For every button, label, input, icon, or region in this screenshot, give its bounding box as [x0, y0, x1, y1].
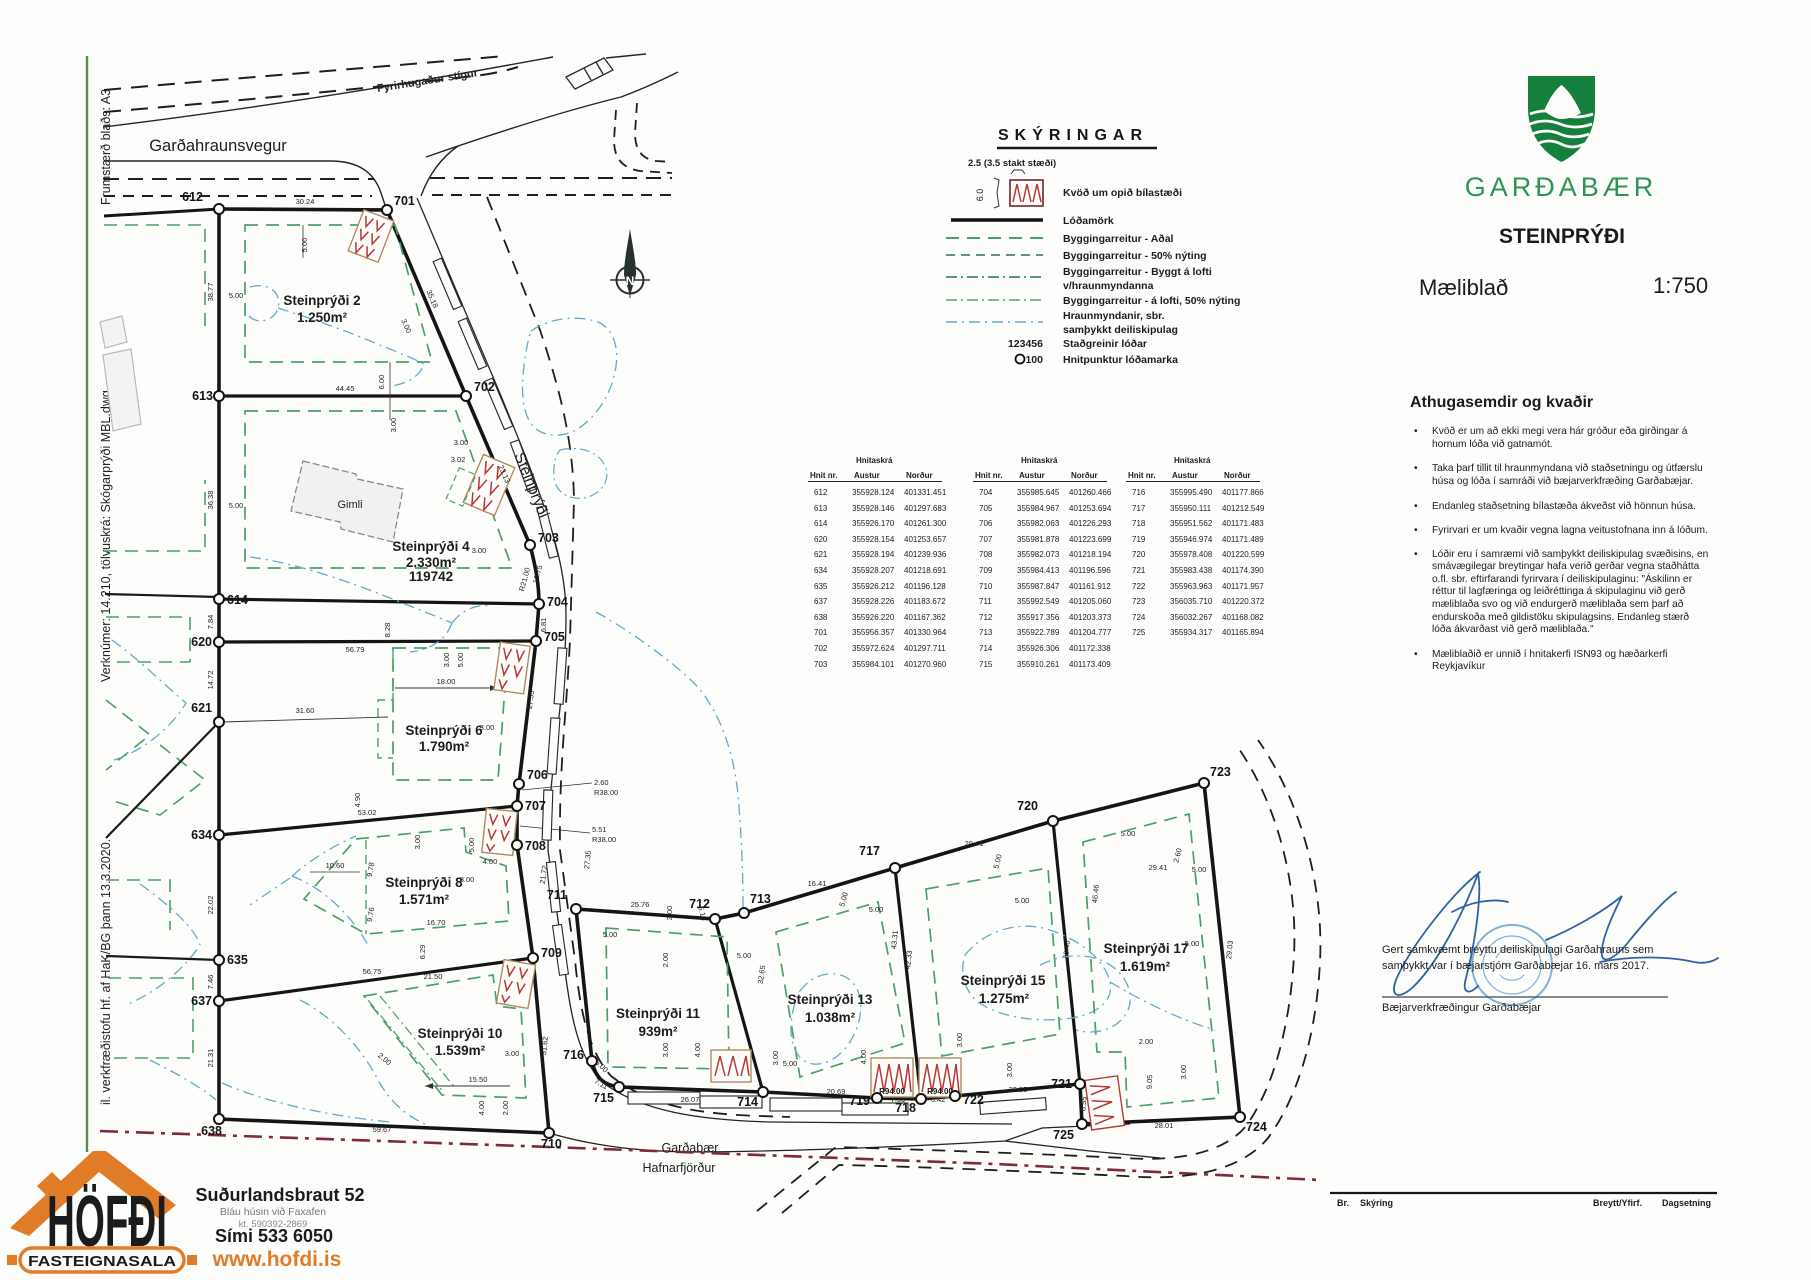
svg-text:21.31: 21.31 [206, 1049, 215, 1068]
svg-text:Suðurlandsbraut 52: Suðurlandsbraut 52 [195, 1185, 364, 1205]
svg-text:8.28: 8.28 [383, 623, 392, 638]
svg-text:15.50: 15.50 [469, 1075, 488, 1084]
svg-text:3.00: 3.00 [454, 438, 469, 447]
svg-text:FASTΕIGNASALA: FASTΕIGNASALA [28, 1253, 176, 1270]
svg-text:56.79: 56.79 [346, 645, 365, 654]
svg-text:22.02: 22.02 [206, 896, 215, 915]
svg-text:Mæliblað: Mæliblað [1419, 275, 1508, 300]
svg-text:5.00: 5.00 [1185, 939, 1200, 948]
svg-text:Frumstærð blaðs: A3: Frumstærð blaðs: A3 [99, 89, 113, 205]
svg-text:707: 707 [525, 799, 546, 813]
svg-text:620: 620 [191, 635, 212, 649]
svg-text:709: 709 [541, 946, 562, 960]
svg-text:3.00: 3.00 [661, 1043, 670, 1058]
svg-text:712: 712 [689, 897, 710, 911]
svg-text:59.67: 59.67 [373, 1125, 392, 1134]
svg-text:Skýring: Skýring [1360, 1198, 1393, 1208]
svg-text:3.00: 3.00 [1005, 1063, 1014, 1078]
svg-text:Steinprýði 8: Steinprýði 8 [385, 875, 463, 890]
svg-text:Steinprýði 15: Steinprýði 15 [961, 973, 1046, 988]
svg-text:5.00: 5.00 [229, 291, 244, 300]
svg-text:v/hraunmyndanna: v/hraunmyndanna [1063, 280, 1154, 292]
svg-text:Byggingarreitur - á lofti, 50%: Byggingarreitur - á lofti, 50% nýting [1063, 295, 1240, 307]
svg-text:14.72: 14.72 [206, 671, 215, 690]
svg-text:701: 701 [394, 194, 415, 208]
svg-text:Dagsetning: Dagsetning [1662, 1198, 1711, 1208]
svg-text:Hraunmyndanir, sbr.: Hraunmyndanir, sbr. [1063, 310, 1165, 322]
svg-text:il. verkfræðistofu hf. af HaK/: il. verkfræðistofu hf. af HaK/BG þann 13… [99, 839, 113, 1105]
svg-text:3.00: 3.00 [389, 418, 398, 433]
svg-text:5.00: 5.00 [869, 905, 884, 914]
svg-text:3.00: 3.00 [472, 546, 487, 555]
svg-text:1.038m²: 1.038m² [805, 1010, 856, 1025]
svg-text:2.60: 2.60 [594, 778, 609, 787]
svg-text:Breytt/Yfirf.: Breytt/Yfirf. [1593, 1198, 1642, 1208]
svg-text:R94.00: R94.00 [879, 1087, 905, 1096]
svg-text:5.00: 5.00 [467, 838, 476, 853]
svg-text:5.00: 5.00 [1121, 829, 1136, 838]
svg-text:Lóðamörk: Lóðamörk [1063, 215, 1114, 227]
svg-text:719: 719 [849, 1094, 870, 1108]
svg-text:5.00: 5.00 [737, 951, 752, 960]
svg-text:Steinprýði 10: Steinprýði 10 [418, 1026, 503, 1041]
svg-text:1.571m²: 1.571m² [399, 892, 450, 907]
svg-text:5.00: 5.00 [1192, 865, 1207, 874]
svg-text:HÖFÐI: HÖFÐI [47, 1182, 167, 1262]
svg-text:708: 708 [525, 839, 546, 853]
svg-text:GARÐABÆR: GARÐABÆR [1465, 172, 1658, 202]
svg-text:4.00: 4.00 [859, 1050, 868, 1065]
svg-text:Steinprýði 11: Steinprýði 11 [616, 1006, 701, 1021]
svg-text:710: 710 [541, 1137, 562, 1151]
svg-text:30.24: 30.24 [296, 197, 315, 206]
svg-text:713: 713 [750, 892, 771, 906]
svg-text:119742: 119742 [409, 569, 453, 584]
svg-text:5.00: 5.00 [456, 653, 465, 668]
svg-text:721: 721 [1051, 1077, 1072, 1091]
svg-text:2.00: 2.00 [661, 953, 670, 968]
svg-text:3.00: 3.00 [1179, 1065, 1188, 1080]
svg-text:5.51: 5.51 [592, 825, 607, 834]
svg-text:28.01: 28.01 [1155, 1121, 1174, 1130]
svg-text:Bæjarverkfræðingur Garðabæjar: Bæjarverkfræðingur Garðabæjar [1382, 1002, 1541, 1014]
svg-text:R38.00: R38.00 [594, 788, 618, 797]
svg-text:Steinprýði 17: Steinprýði 17 [1104, 941, 1189, 956]
svg-text:5.00: 5.00 [300, 238, 309, 253]
svg-text:4.90: 4.90 [353, 793, 362, 808]
svg-text:5.00: 5.00 [783, 1059, 798, 1068]
svg-text:720: 720 [1017, 799, 1038, 813]
svg-text:724: 724 [1246, 1120, 1267, 1134]
svg-text:5.00: 5.00 [1015, 896, 1030, 905]
svg-text:44.45: 44.45 [336, 384, 355, 393]
svg-text:samþykkt var í bæjarstjórn Gar: samþykkt var í bæjarstjórn Garðabæjar 16… [1382, 960, 1649, 972]
svg-text:614: 614 [227, 593, 248, 607]
svg-text:613: 613 [192, 389, 213, 403]
svg-text:3.00: 3.00 [505, 1049, 520, 1058]
svg-text:612: 612 [182, 190, 203, 204]
svg-text:Verknúmer: 14.210, tölvuskrá:: Verknúmer: 14.210, tölvuskrá: Skógarprýð… [99, 390, 113, 682]
svg-text:26.07: 26.07 [681, 1095, 700, 1104]
svg-text:Byggingarreitur - Aðal: Byggingarreitur - Aðal [1063, 233, 1174, 245]
svg-text:36.38: 36.38 [206, 491, 215, 510]
svg-text:25.76: 25.76 [631, 900, 650, 909]
svg-text:717: 717 [859, 844, 880, 858]
svg-text:4.00: 4.00 [483, 857, 498, 866]
svg-text:2.00: 2.00 [501, 1101, 510, 1116]
svg-text:7.46: 7.46 [206, 975, 215, 990]
svg-text:3.00: 3.00 [413, 835, 422, 850]
svg-text:1.619m²: 1.619m² [1120, 959, 1171, 974]
svg-text:1.539m²: 1.539m² [435, 1043, 486, 1058]
svg-text:3.00: 3.00 [771, 1051, 780, 1066]
svg-text:704: 704 [547, 595, 568, 609]
svg-text:715: 715 [593, 1091, 614, 1105]
svg-text:703: 703 [538, 531, 559, 545]
svg-text:6.29: 6.29 [418, 945, 427, 960]
svg-text:56.75: 56.75 [363, 967, 382, 976]
svg-text:Byggingarreitur - Byggt á loft: Byggingarreitur - Byggt á lofti [1063, 266, 1212, 278]
svg-text:705: 705 [544, 630, 565, 644]
svg-text:29.41: 29.41 [1149, 863, 1168, 872]
svg-text:5.00: 5.00 [229, 501, 244, 510]
svg-text:18.00: 18.00 [437, 677, 456, 686]
svg-text:16.70: 16.70 [427, 918, 446, 927]
svg-text:123456: 123456 [1008, 338, 1043, 350]
svg-text:718: 718 [895, 1101, 916, 1115]
svg-text:100: 100 [1025, 354, 1043, 366]
svg-text:716: 716 [563, 1048, 584, 1062]
svg-text:STEINPRÝÐI: STEINPRÝÐI [1499, 224, 1625, 248]
svg-text:5.00: 5.00 [603, 930, 618, 939]
svg-text:Steinprýði 13: Steinprýði 13 [788, 992, 873, 1007]
svg-text:6.0: 6.0 [975, 189, 985, 202]
svg-text:634: 634 [191, 828, 212, 842]
svg-text:637: 637 [191, 994, 212, 1008]
svg-text:N: N [626, 274, 635, 288]
svg-text:22.55: 22.55 [1009, 1085, 1028, 1094]
svg-text:SKÝRINGAR: SKÝRINGAR [998, 125, 1148, 144]
svg-text:711: 711 [547, 888, 567, 902]
svg-text:621: 621 [191, 701, 212, 715]
svg-text:29.03: 29.03 [1224, 940, 1235, 959]
svg-text:www.hofdi.is: www.hofdi.is [212, 1248, 342, 1271]
svg-text:939m²: 939m² [638, 1024, 678, 1039]
svg-text:3.00: 3.00 [480, 723, 495, 732]
svg-text:16.41: 16.41 [808, 879, 827, 888]
svg-text:3.02: 3.02 [451, 455, 466, 464]
svg-text:29.41: 29.41 [965, 839, 984, 848]
svg-text:1.250m²: 1.250m² [297, 310, 348, 325]
svg-text:3.00: 3.00 [955, 1033, 964, 1048]
svg-text:Gimli: Gimli [337, 499, 362, 511]
svg-text:714: 714 [737, 1095, 758, 1109]
svg-text:53.02: 53.02 [358, 808, 377, 817]
svg-text:635: 635 [227, 953, 248, 967]
svg-text:638: 638 [201, 1124, 222, 1138]
svg-text:R38.00: R38.00 [592, 835, 616, 844]
svg-text:1.790m²: 1.790m² [419, 739, 470, 754]
svg-text:Kvöð um opið bílastæði: Kvöð um opið bílastæði [1063, 187, 1182, 199]
svg-text:723: 723 [1210, 765, 1231, 779]
svg-text:4.00: 4.00 [477, 1101, 486, 1116]
svg-text:Staðgreinir lóðar: Staðgreinir lóðar [1063, 338, 1147, 350]
svg-text:2.5 (3.5 stakt stæði): 2.5 (3.5 stakt stæði) [968, 158, 1056, 169]
svg-text:20.69: 20.69 [827, 1087, 846, 1096]
svg-text:722: 722 [963, 1093, 984, 1107]
svg-text:1.275m²: 1.275m² [979, 991, 1030, 1006]
svg-text:725: 725 [1053, 1128, 1074, 1142]
svg-text:Sími 533 6050: Sími 533 6050 [215, 1226, 333, 1246]
svg-text:702: 702 [474, 380, 495, 394]
svg-text:7.84: 7.84 [206, 615, 215, 630]
svg-text:Steinprýði 2: Steinprýði 2 [283, 293, 360, 308]
svg-text:2.330m²: 2.330m² [406, 555, 457, 570]
svg-text:3.00: 3.00 [442, 653, 451, 668]
svg-text:1:750: 1:750 [1653, 273, 1708, 298]
svg-text:3.00: 3.00 [460, 875, 475, 884]
svg-text:Steinprýði 6: Steinprýði 6 [405, 723, 483, 738]
svg-text:3.00: 3.00 [665, 906, 674, 921]
svg-text:10.60: 10.60 [326, 861, 345, 870]
svg-text:Hnitpunktur lóðamarka: Hnitpunktur lóðamarka [1063, 354, 1178, 366]
svg-text:Bláu húsin við Faxafen: Bláu húsin við Faxafen [220, 1206, 326, 1218]
svg-text:4.00: 4.00 [693, 1043, 702, 1058]
svg-text:706: 706 [527, 768, 548, 782]
svg-text:Br.: Br. [1337, 1198, 1349, 1208]
svg-text:9.05: 9.05 [1145, 1074, 1155, 1089]
svg-text:21.50: 21.50 [424, 972, 443, 981]
svg-text:6.55: 6.55 [1078, 1096, 1088, 1111]
svg-text:2.00: 2.00 [1139, 1037, 1154, 1046]
svg-text:samþykkt deiliskipulag: samþykkt deiliskipulag [1063, 324, 1178, 336]
svg-text:Steinprýði 4: Steinprýði 4 [392, 539, 470, 554]
svg-text:38.77: 38.77 [206, 283, 215, 302]
svg-text:Gert samkvæmt breyttu deili: Gert samkvæmt breyttu deiliskipulagi Gar… [1382, 944, 1653, 956]
svg-text:Garðahraunsvegur: Garðahraunsvegur [149, 137, 287, 155]
svg-text:31.60: 31.60 [296, 706, 315, 715]
svg-text:6.00: 6.00 [377, 375, 386, 390]
svg-text:Byggingarreitur - 50% nýting: Byggingarreitur - 50% nýting [1063, 250, 1207, 262]
svg-text:Hafnarfjörður: Hafnarfjörður [643, 1161, 716, 1175]
